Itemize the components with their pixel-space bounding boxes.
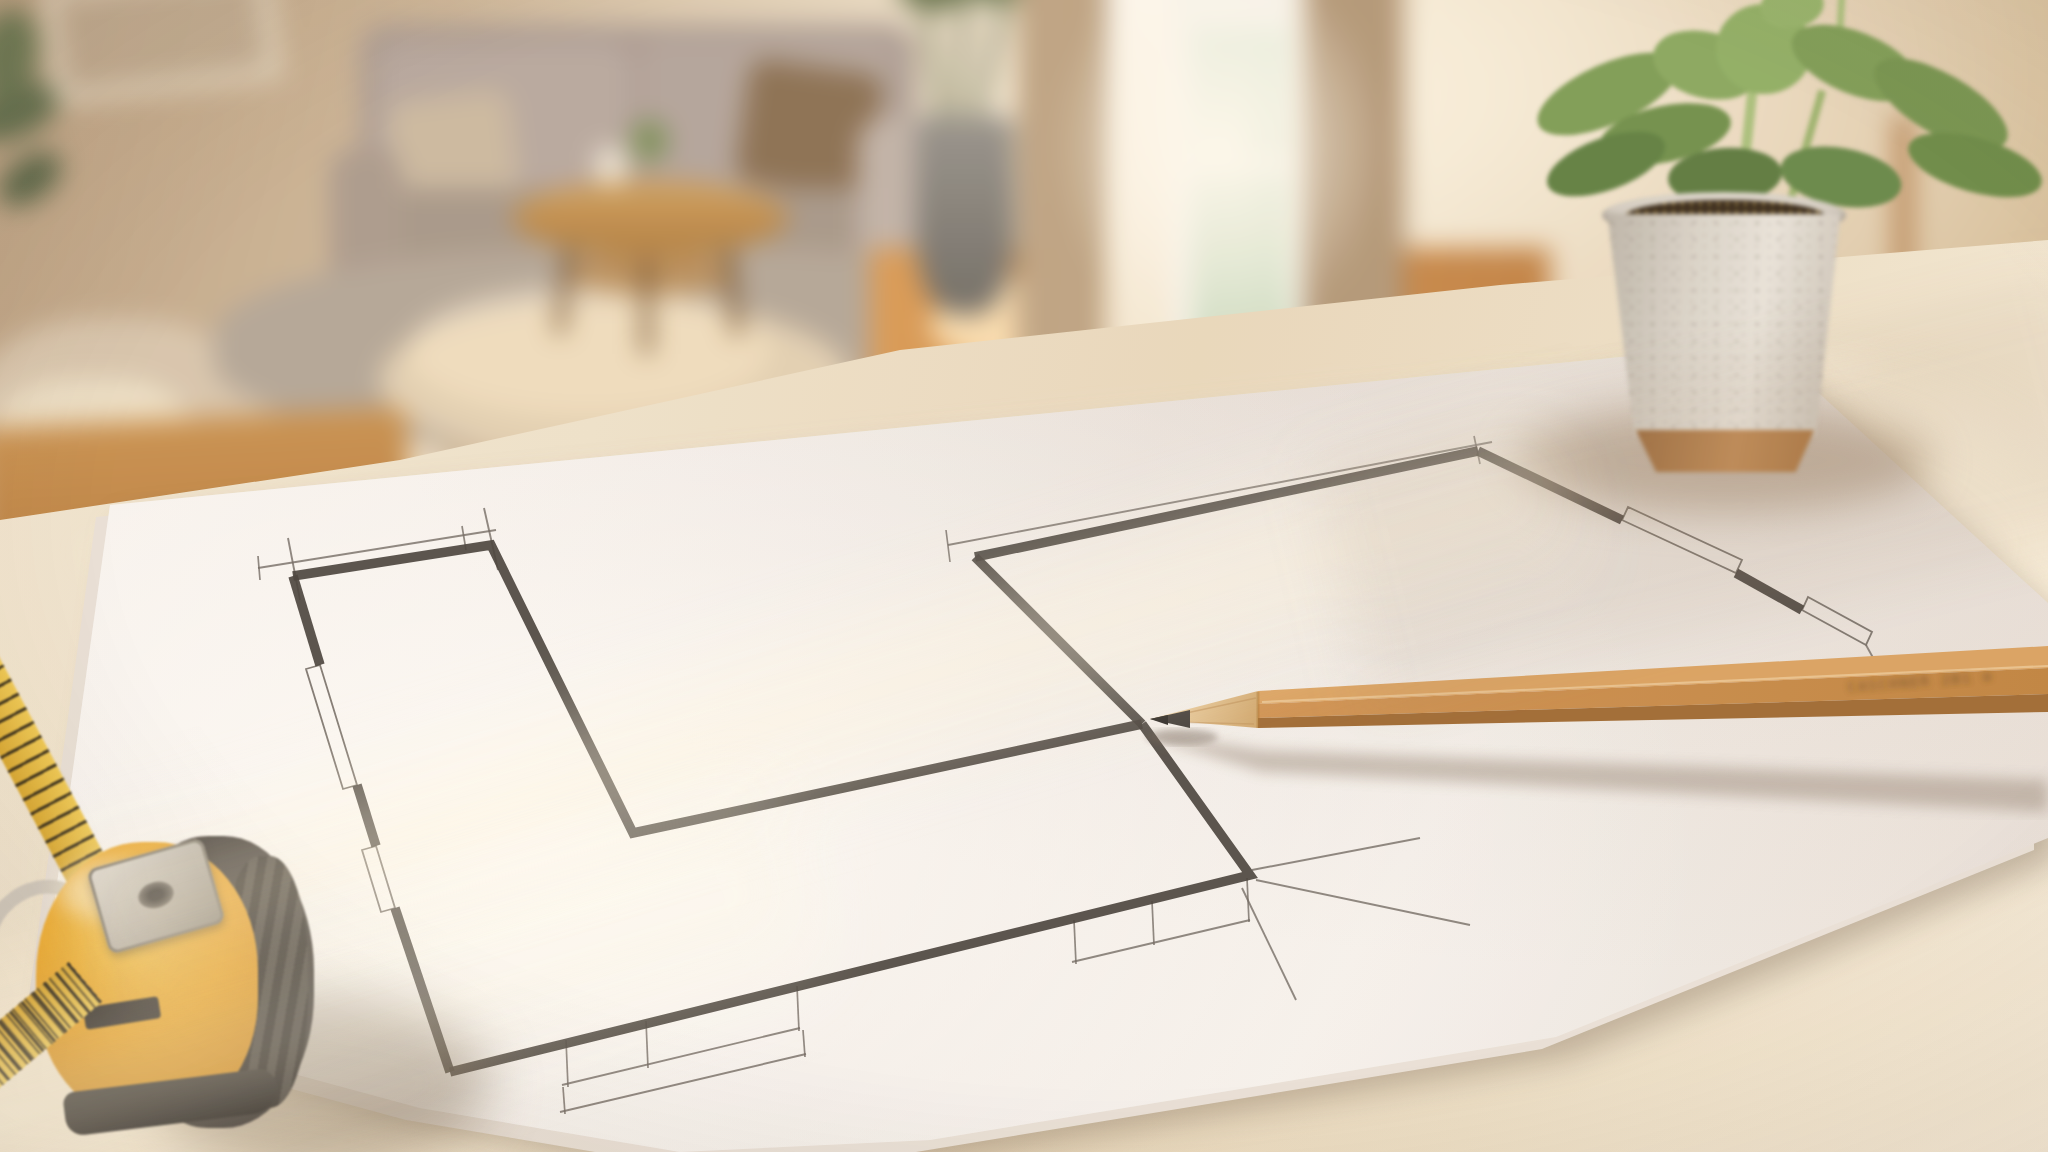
tape-measure xyxy=(0,0,2048,1152)
photo-scene: CASCHNER 2B1 ⊕ xyxy=(0,0,2048,1152)
